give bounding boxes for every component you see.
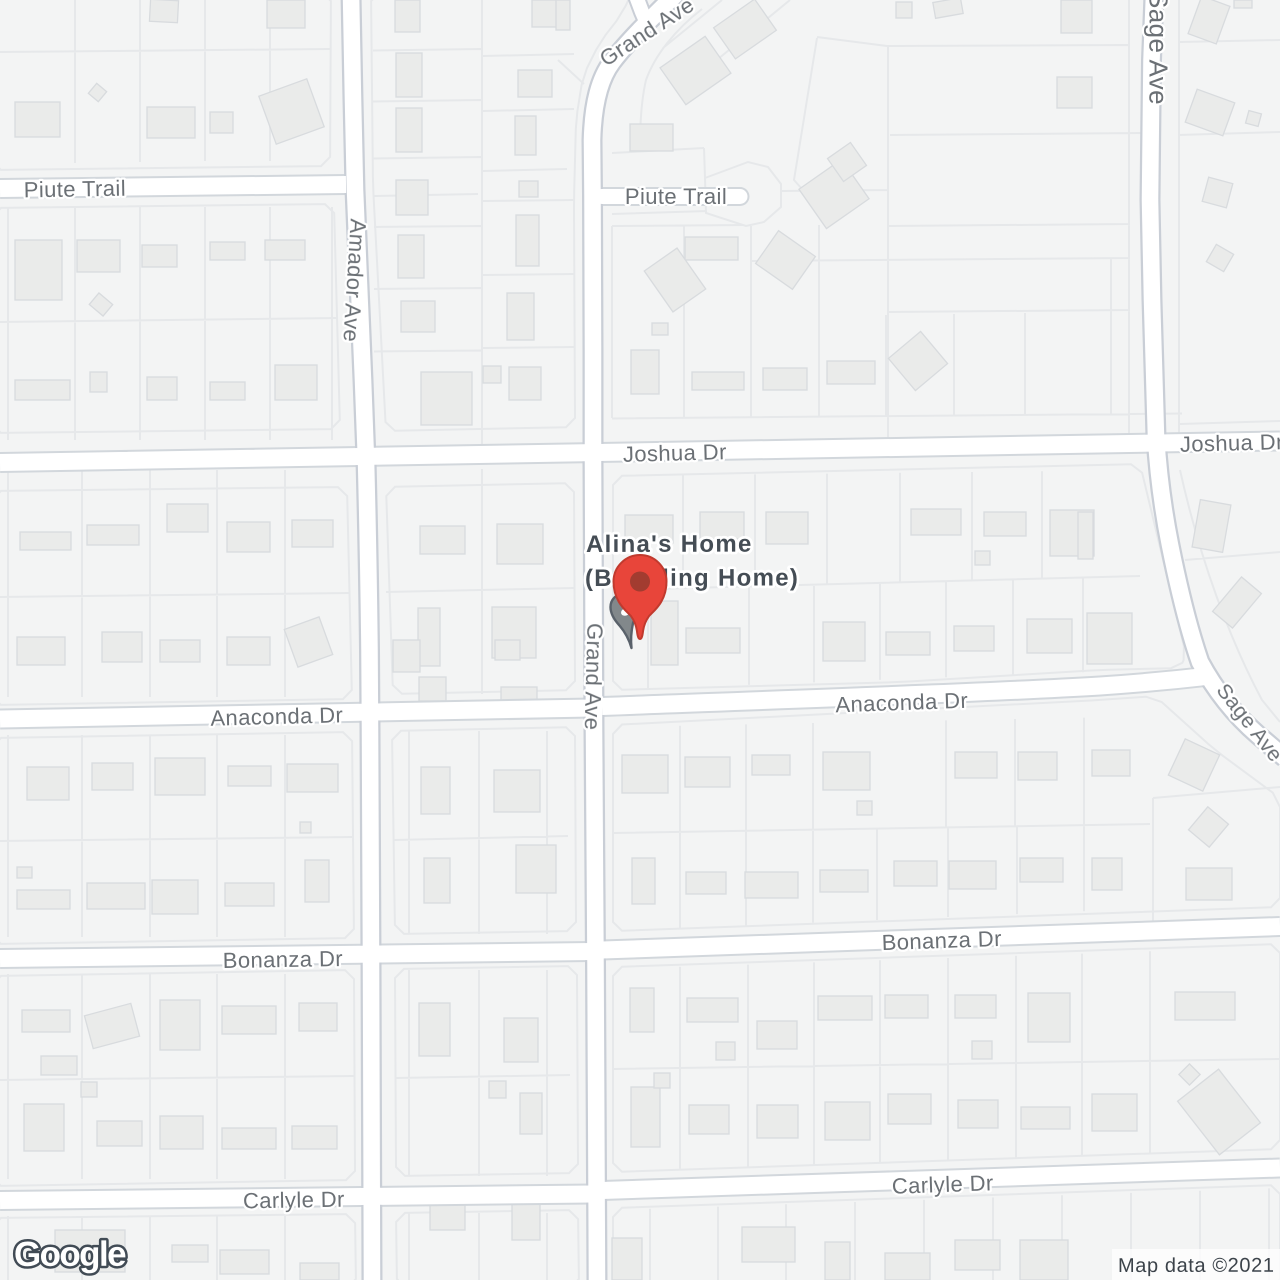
svg-text:Carlyle Dr: Carlyle Dr [891,1170,994,1199]
svg-text:Joshua Dr: Joshua Dr [623,439,727,467]
svg-text:Alina's Home: Alina's Home [586,531,753,558]
svg-text:Bonanza Dr: Bonanza Dr [223,946,344,973]
svg-text:Google: Google [14,1235,126,1274]
svg-text:Bonanza Dr: Bonanza Dr [881,926,1002,955]
svg-text:Sage Ave: Sage Ave [1144,0,1174,105]
svg-text:Piute Trail: Piute Trail [24,176,127,203]
svg-text:Anaconda Dr: Anaconda Dr [835,688,969,718]
svg-text:Anaconda Dr: Anaconda Dr [210,702,343,730]
svg-text:Joshua Dr: Joshua Dr [1180,429,1280,457]
svg-text:Map data ©2021: Map data ©2021 [1118,1255,1275,1277]
svg-text:Carlyle Dr: Carlyle Dr [243,1187,345,1214]
svg-text:Piute Trail: Piute Trail [625,184,727,209]
svg-text:Grand Ave: Grand Ave [580,623,608,731]
